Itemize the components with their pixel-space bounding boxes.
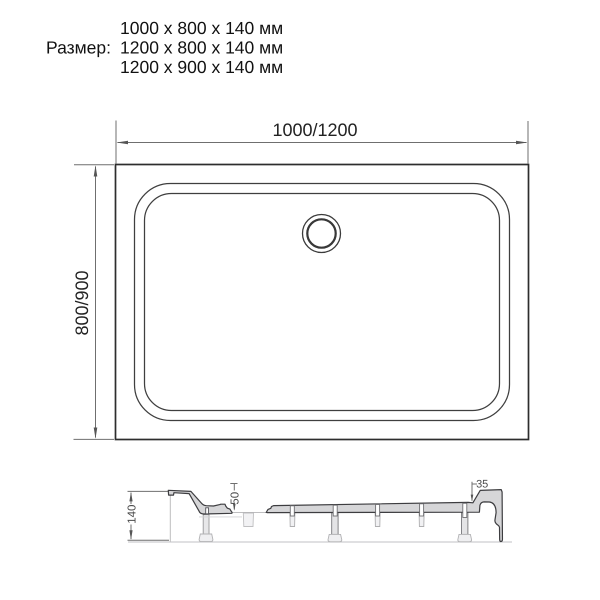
svg-text:1000 x 800 x 140 мм: 1000 x 800 x 140 мм	[120, 18, 283, 38]
svg-text:1000/1200: 1000/1200	[272, 120, 357, 140]
svg-text:Размер:: Размер:	[46, 38, 111, 58]
svg-text:1200 x 800 x 140 мм: 1200 x 800 x 140 мм	[120, 38, 283, 58]
svg-text:800/900: 800/900	[72, 270, 92, 335]
svg-text:140: 140	[126, 505, 138, 524]
svg-text:35: 35	[476, 479, 488, 491]
svg-text:1200 x 900 x 140 мм: 1200 x 900 x 140 мм	[120, 57, 283, 77]
svg-text:50: 50	[229, 492, 241, 505]
